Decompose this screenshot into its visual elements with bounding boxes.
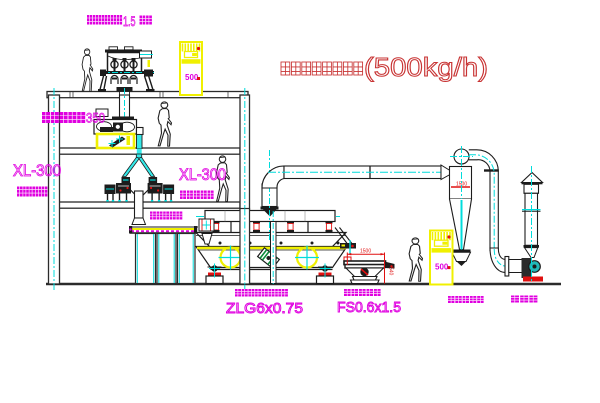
svg-text:500: 500 [435, 262, 449, 271]
svg-text:XL-300: XL-300 [13, 162, 61, 180]
svg-text:ZLG6x0.75: ZLG6x0.75 [226, 301, 303, 317]
svg-text:XL-300: XL-300 [179, 166, 226, 184]
svg-text:500: 500 [185, 73, 199, 82]
svg-text:(500kg/h): (500kg/h) [364, 52, 488, 82]
svg-text:FS0.6x1.5: FS0.6x1.5 [337, 300, 401, 316]
svg-text:350: 350 [86, 111, 105, 126]
svg-text:540: 540 [388, 267, 394, 276]
svg-text:1500: 1500 [360, 249, 371, 255]
svg-text:1.5: 1.5 [123, 14, 136, 29]
